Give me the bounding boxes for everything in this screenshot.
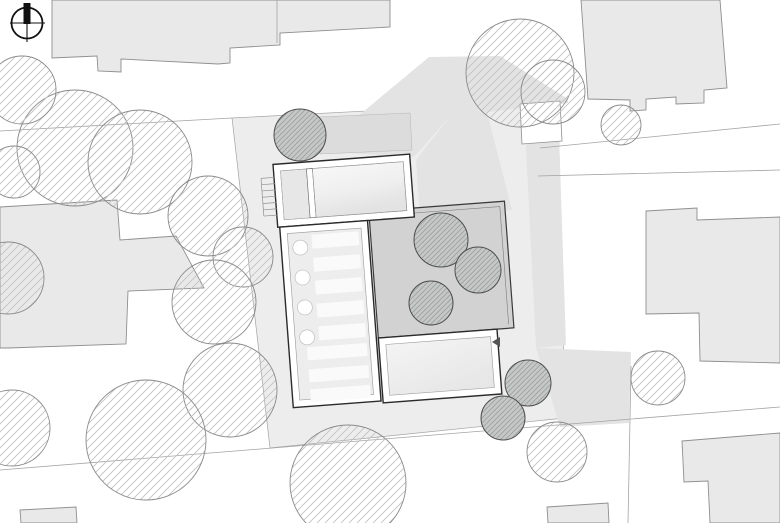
top-wing-small-room	[281, 169, 311, 220]
tree-canopy-solid	[409, 281, 453, 325]
building-southwest-small	[20, 507, 77, 523]
tree-canopy	[172, 260, 256, 344]
building-south-small	[547, 503, 609, 523]
tree-canopy-solid	[455, 247, 501, 293]
site-plan	[0, 0, 780, 523]
tree-canopy-solid	[274, 109, 326, 161]
north-arrow-needle	[24, 3, 31, 24]
tree-canopy	[86, 380, 206, 500]
garden-bed	[318, 113, 412, 154]
tree-canopy	[527, 422, 587, 482]
tree-canopy	[601, 105, 641, 145]
bottom-room-interior	[386, 337, 495, 396]
tree-canopy	[631, 351, 685, 405]
tree-canopy-solid	[481, 396, 525, 440]
site-plan-canvas	[0, 0, 780, 523]
tree-canopy	[521, 60, 585, 124]
top-wing-main-room	[312, 162, 406, 218]
